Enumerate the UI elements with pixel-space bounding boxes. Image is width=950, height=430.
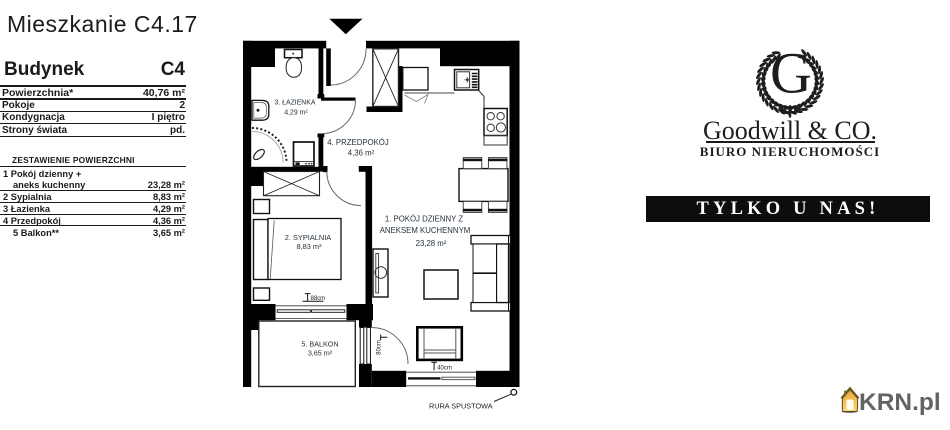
- svg-text:4. PRZEDPOKÓJ: 4. PRZEDPOKÓJ: [327, 138, 389, 147]
- svg-text:80cm: 80cm: [377, 340, 383, 355]
- svg-text:G: G: [770, 44, 812, 106]
- svg-text:40cm: 40cm: [437, 366, 452, 372]
- svg-text:8,83 m²: 8,83 m²: [296, 242, 322, 251]
- svg-text:3. ŁAZIENKA: 3. ŁAZIENKA: [275, 100, 316, 107]
- svg-text:RURA SPUSTOWA: RURA SPUSTOWA: [429, 402, 493, 411]
- svg-text:4,29 m²: 4,29 m²: [284, 110, 308, 117]
- svg-text:2. SYPIALNIA: 2. SYPIALNIA: [285, 233, 331, 242]
- svg-text:ANEKSEM KUCHENNYM: ANEKSEM KUCHENNYM: [380, 226, 471, 235]
- svg-text:4,36 m²: 4,36 m²: [348, 149, 375, 158]
- svg-text:23,28 m²: 23,28 m²: [416, 239, 447, 248]
- svg-text:1. POKÓJ DZIENNY Z: 1. POKÓJ DZIENNY Z: [385, 215, 464, 224]
- svg-text:5. BALKON: 5. BALKON: [301, 340, 338, 349]
- svg-text:3,65 m²: 3,65 m²: [308, 349, 333, 358]
